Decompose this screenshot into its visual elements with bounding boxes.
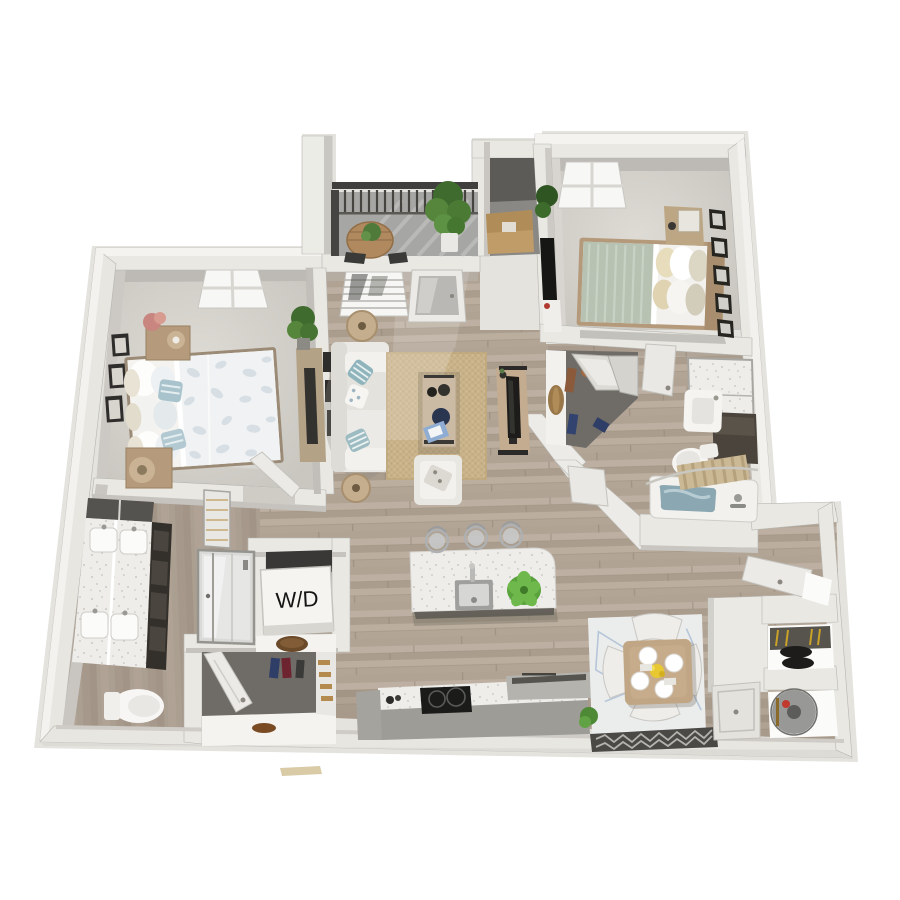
svg-text:W/D: W/D — [275, 586, 319, 613]
